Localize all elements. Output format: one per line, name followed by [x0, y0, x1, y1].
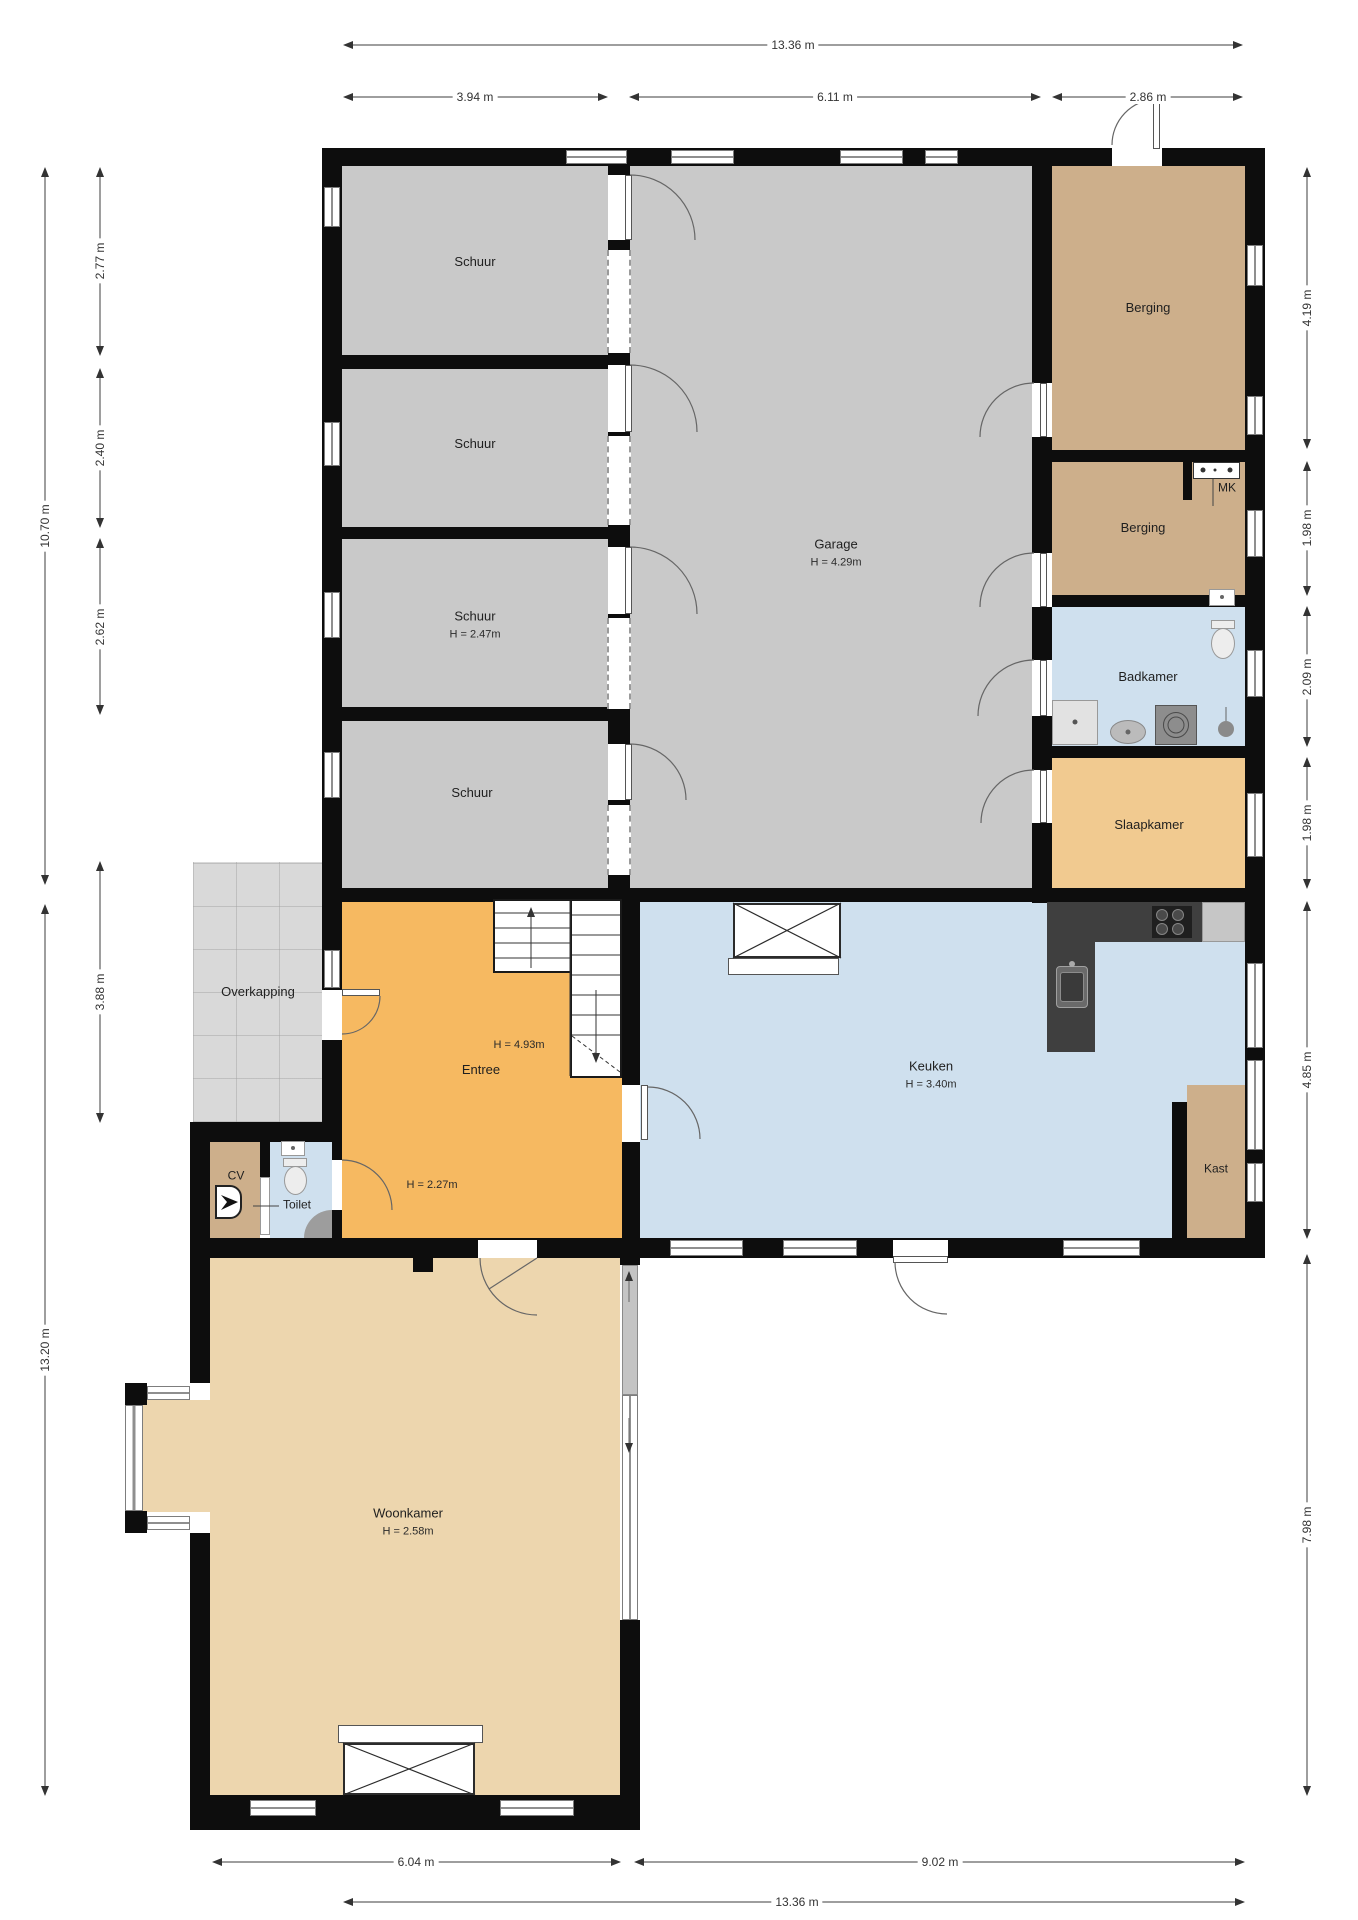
room-label-kast: Kast: [1204, 1160, 1228, 1179]
room-garage-area: [630, 166, 1032, 888]
dim-left-b: 2.40 m: [93, 426, 107, 471]
dim-left-total2: 13.20 m: [38, 1324, 52, 1375]
door-leaf: [625, 744, 632, 800]
wall-west-lower: [190, 1533, 210, 1830]
wall-toilet-east-b: [332, 1210, 342, 1238]
window: [324, 187, 340, 227]
void-box-keuken: [733, 903, 841, 958]
window: [324, 592, 340, 638]
wall-woonkamer-east-b: [620, 1620, 640, 1795]
wall-entree-keuken-b: [622, 1142, 640, 1238]
bay-corner-top: [125, 1383, 147, 1405]
shower-tray: [1052, 700, 1098, 745]
wall-schuur-divider1: [342, 355, 608, 369]
wall-entree-keuken-a: [622, 902, 640, 1085]
floorplan: Schuur Schuur SchuurH = 2.47m Schuur Gar…: [0, 0, 1358, 1920]
window: [1063, 1240, 1140, 1256]
dim-bottom-b: 9.02 m: [918, 1855, 963, 1869]
dim-top-c: 2.86 m: [1126, 90, 1171, 104]
meter-panel: [1193, 462, 1240, 479]
dim-top-a: 3.94 m: [453, 90, 498, 104]
room-label-badkamer: Badkamer: [1118, 667, 1177, 687]
room-label-cv: CV: [228, 1167, 245, 1186]
glass-panel: [622, 1265, 638, 1395]
dim-bottom-a: 6.04 m: [394, 1855, 439, 1869]
dim-bottom-total: 13.36 m: [771, 1895, 822, 1909]
window: [1247, 793, 1263, 857]
dim-left-total: 10.70 m: [38, 500, 52, 551]
door-leaf: [625, 547, 632, 614]
wall-toilet-east-a: [332, 1122, 342, 1160]
room-label-woonkamer: WoonkamerH = 2.58m: [373, 1503, 443, 1540]
room-label-entree: Entree: [462, 1060, 500, 1080]
toilet-bowl-badkamer: [1211, 628, 1235, 659]
dim-left-c: 2.62 m: [93, 605, 107, 650]
door-leaf: [1040, 553, 1047, 607]
dim-top-b: 6.11 m: [813, 90, 857, 104]
wall-cv-toilet-divider: [260, 1142, 270, 1177]
room-schuur4-area: [342, 721, 608, 888]
wall-schuur-divider3: [342, 707, 608, 721]
window: [566, 150, 627, 164]
washing-machine: [1155, 705, 1197, 745]
window: [324, 422, 340, 466]
door-leaf-keuken: [641, 1085, 648, 1140]
label-entree-vide-height: H = 4.93m: [493, 1039, 544, 1051]
door-leaf: [1040, 660, 1047, 716]
wall-mk-stub: [1183, 462, 1192, 500]
room-label-garage: GarageH = 4.29m: [810, 534, 861, 571]
room-label-overkapping: Overkapping: [221, 982, 295, 1002]
kitchen-sink-basin: [1060, 972, 1084, 1002]
door-leaf-front: [1153, 97, 1160, 149]
wall-opening-dashed: [607, 805, 631, 875]
window: [670, 1240, 743, 1256]
bay-window-top: [147, 1386, 190, 1400]
window: [324, 752, 340, 798]
bathroom-sink: [1209, 589, 1235, 606]
dim-right-c: 2.09 m: [1300, 655, 1314, 700]
window: [500, 1800, 574, 1816]
window: [1247, 1060, 1263, 1150]
window: [925, 150, 958, 164]
dim-right-a: 4.19 m: [1300, 286, 1314, 331]
wall-berging-divider: [1032, 450, 1265, 462]
window: [1247, 396, 1263, 435]
window: [1247, 510, 1263, 557]
room-label-schuur1: Schuur: [454, 252, 495, 272]
hearth-box: [343, 1743, 475, 1795]
wall-schuur-divider2: [342, 527, 608, 539]
room-label-schuur2: Schuur: [454, 434, 495, 454]
window: [1247, 963, 1263, 1048]
dim-right-b: 1.98 m: [1300, 506, 1314, 551]
wall-opening-dashed: [607, 618, 631, 709]
bay-window-bottom: [147, 1516, 190, 1530]
cv-toilet-door: [260, 1177, 270, 1235]
window: [783, 1240, 857, 1256]
dim-right-e: 4.85 m: [1300, 1048, 1314, 1093]
room-label-toilet: Toilet: [283, 1196, 311, 1215]
window: [324, 950, 340, 988]
room-label-mk: MK: [1218, 479, 1236, 498]
cooktop: [1152, 906, 1192, 938]
door-opening-toilet: [332, 1160, 342, 1210]
washbasin: [1110, 720, 1146, 744]
wall-opening-dashed: [607, 436, 631, 525]
wall-opening-dashed: [607, 250, 631, 353]
door-opening-front: [1112, 148, 1162, 166]
wall-stub-woonkamer: [413, 1258, 433, 1272]
room-label-berging1: Berging: [1126, 298, 1171, 318]
door-leaf-tuin: [893, 1256, 948, 1263]
toilet-bowl-wc: [284, 1166, 307, 1195]
window: [840, 150, 903, 164]
door-leaf-entree: [342, 989, 380, 996]
bay-window-left: [125, 1405, 143, 1511]
door-leaf: [1040, 383, 1047, 437]
void-box-keuken-bar: [728, 958, 839, 975]
bay-corner-bottom: [125, 1511, 147, 1533]
door-leaf: [625, 175, 632, 240]
wall-cv-top: [190, 1122, 342, 1142]
kitchen-appliance: [1202, 902, 1245, 942]
room-label-schuur3: SchuurH = 2.47m: [449, 606, 500, 643]
shower-head: [1218, 721, 1234, 737]
window: [1247, 650, 1263, 697]
bay-window-floor: [143, 1400, 210, 1512]
wc-sink: [281, 1141, 305, 1156]
room-label-berging2: Berging: [1121, 518, 1166, 538]
cv-boiler: [215, 1185, 242, 1219]
room-label-slaapkamer: Slaapkamer: [1114, 815, 1183, 835]
door-opening-woonkamer: [478, 1240, 537, 1258]
dim-top-total: 13.36 m: [767, 38, 818, 52]
wall-south-topblock: [322, 888, 1265, 902]
room-label-keuken: KeukenH = 3.40m: [905, 1056, 956, 1093]
window: [671, 150, 734, 164]
staircase-lower-flight: [570, 899, 622, 1078]
dim-left-d: 3.88 m: [93, 970, 107, 1015]
dim-left-a: 2.77 m: [93, 239, 107, 284]
door-leaf: [1040, 770, 1047, 823]
window-sliding: [622, 1395, 638, 1620]
wall-kast-west: [1172, 1102, 1187, 1238]
window: [250, 1800, 316, 1816]
door-opening-entree: [322, 990, 342, 1040]
wall-woonkamer-east-a: [620, 1255, 640, 1265]
room-label-schuur4: Schuur: [451, 783, 492, 803]
dim-right-d: 1.98 m: [1300, 801, 1314, 846]
hearth-bar: [338, 1725, 483, 1743]
dim-right-f: 7.98 m: [1300, 1503, 1314, 1548]
wall-slaapkamer-top: [1045, 746, 1265, 758]
door-leaf: [625, 365, 632, 432]
label-entree-low-height: H = 2.27m: [406, 1179, 457, 1191]
window: [1247, 245, 1263, 286]
window: [1247, 1163, 1263, 1202]
